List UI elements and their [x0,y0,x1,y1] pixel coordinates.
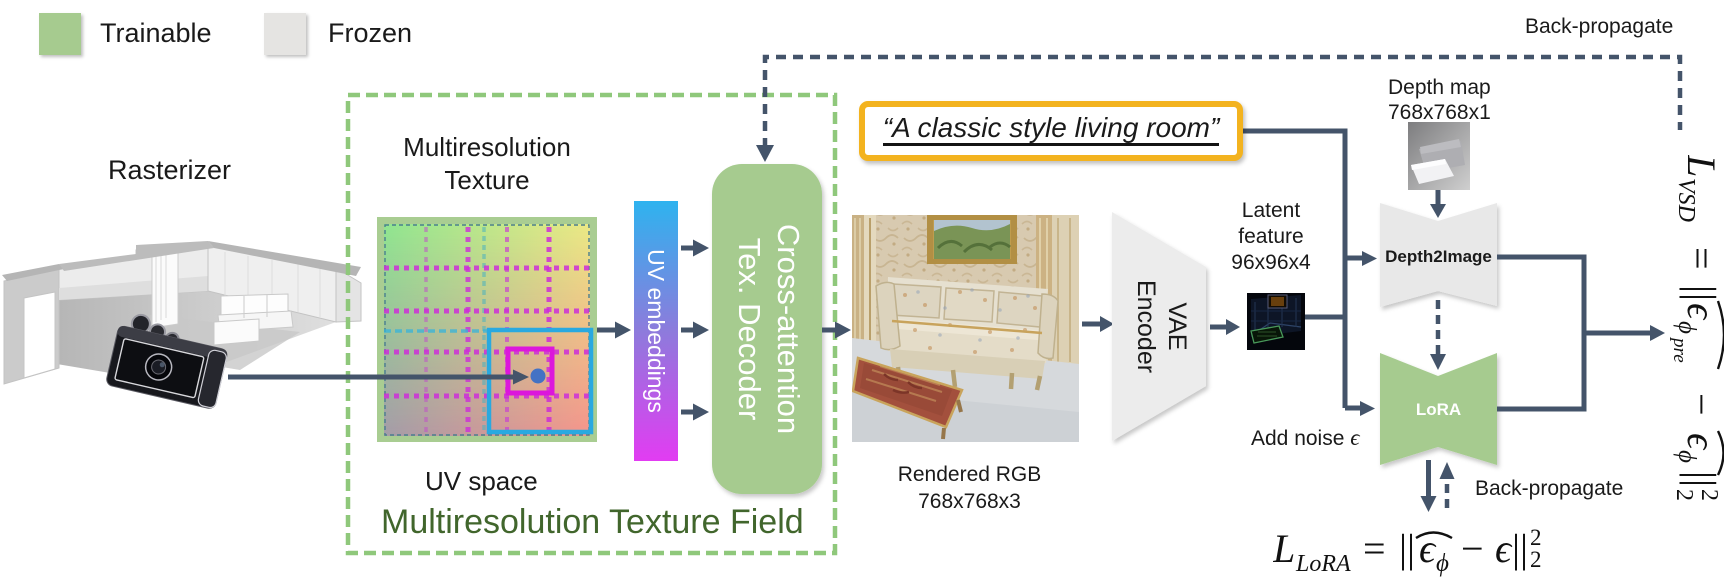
svg-text:−: − [1679,393,1724,416]
svg-text:2: 2 [1671,489,1697,501]
svg-text:ϕ: ϕ [1673,450,1700,463]
svg-text:=: = [1679,247,1724,270]
svg-text:ϵ: ϵ [1495,526,1513,571]
svg-text:||: || [1679,471,1724,487]
svg-text:L: L [1273,526,1295,571]
svg-text:L: L [1679,155,1724,177]
svg-text:||: || [1512,526,1528,571]
svg-text:2: 2 [1530,547,1542,572]
svg-text:2: 2 [1696,489,1722,501]
svg-text:ϵ: ϵ [1679,303,1724,321]
svg-text:ϕ: ϕ [1436,550,1449,577]
svg-text:||: || [1399,526,1415,571]
svg-text:||: || [1679,285,1724,301]
svg-text:−: − [1461,526,1484,571]
svg-text:ϕ: ϕ [1673,321,1700,334]
svg-text:pre: pre [1669,336,1690,363]
svg-text:=: = [1363,526,1386,571]
svg-text:ϵ: ϵ [1679,433,1724,451]
svg-text:VSD: VSD [1673,178,1699,222]
svg-text:LoRA: LoRA [1295,551,1351,577]
